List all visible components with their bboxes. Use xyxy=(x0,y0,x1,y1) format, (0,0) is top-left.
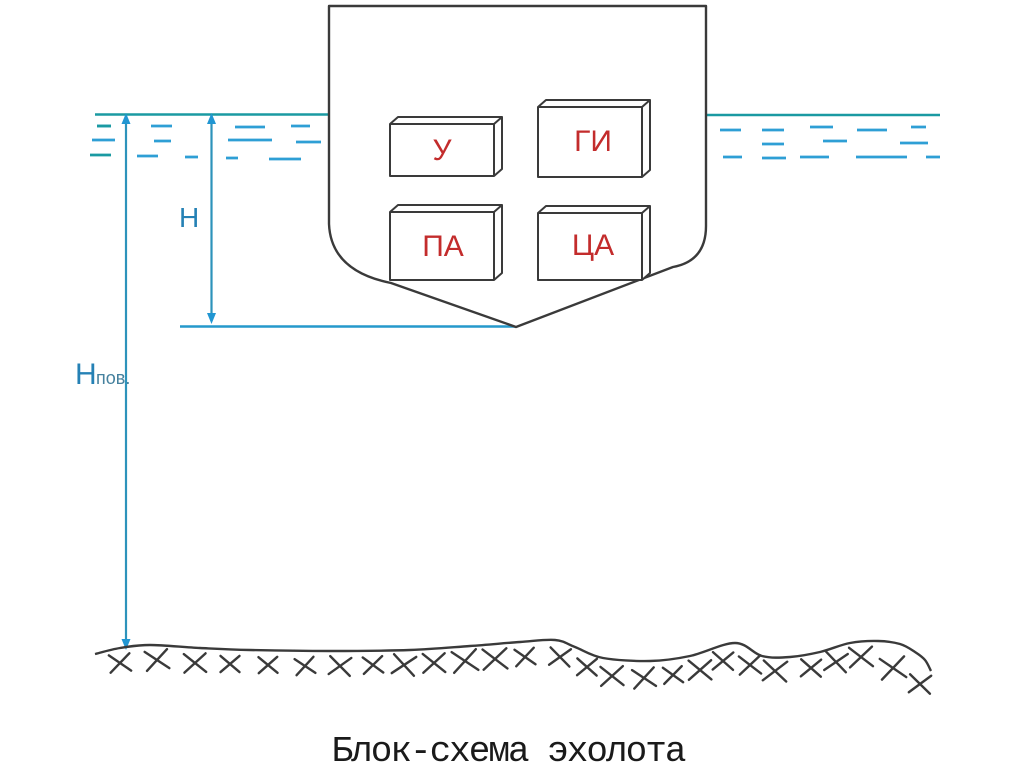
svg-text:У: У xyxy=(432,134,452,167)
svg-text:пов.: пов. xyxy=(96,368,130,388)
svg-text:ГИ: ГИ xyxy=(574,125,612,158)
svg-text:Н: Н xyxy=(75,358,97,391)
svg-text:Блок-схема эхолота: Блок-схема эхолота xyxy=(332,731,686,767)
svg-text:ЦА: ЦА xyxy=(572,229,614,262)
svg-text:ПА: ПА xyxy=(422,230,464,263)
svg-text:H: H xyxy=(179,202,199,233)
